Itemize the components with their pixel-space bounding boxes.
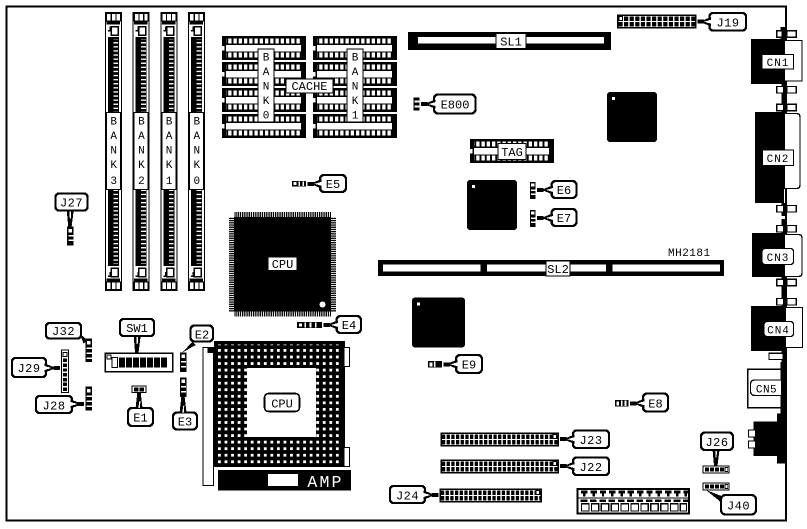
svg-text:SL1: SL1: [500, 36, 522, 50]
svg-text:K: K: [352, 96, 359, 108]
svg-text:J23: J23: [579, 434, 602, 448]
svg-text:J27: J27: [60, 197, 83, 211]
svg-text:B: B: [193, 117, 200, 129]
svg-text:J32: J32: [52, 325, 75, 339]
svg-text:TAG: TAG: [501, 146, 523, 160]
svg-text:E5: E5: [326, 178, 340, 192]
svg-text:B: B: [166, 117, 173, 129]
svg-text:1: 1: [352, 111, 359, 123]
svg-text:A: A: [263, 67, 270, 79]
svg-text:0: 0: [193, 176, 200, 188]
svg-text:AMP: AMP: [307, 473, 343, 492]
svg-text:CN2: CN2: [767, 154, 790, 166]
svg-text:SW1: SW1: [126, 322, 148, 336]
svg-text:K: K: [166, 160, 173, 172]
svg-text:E2: E2: [195, 328, 209, 342]
svg-text:K: K: [138, 160, 145, 172]
svg-text:N: N: [138, 146, 145, 158]
svg-text:E3: E3: [178, 416, 192, 430]
svg-text:CN5: CN5: [756, 385, 777, 397]
svg-text:N: N: [110, 146, 117, 158]
svg-text:N: N: [263, 82, 270, 94]
svg-text:MH2181: MH2181: [668, 248, 711, 260]
svg-text:J28: J28: [42, 400, 65, 414]
svg-text:A: A: [352, 67, 359, 79]
svg-text:E4: E4: [342, 319, 356, 333]
svg-text:A: A: [193, 131, 200, 143]
svg-text:A: A: [110, 131, 117, 143]
svg-text:E6: E6: [557, 184, 571, 198]
svg-text:J22: J22: [579, 461, 602, 475]
svg-text:B: B: [263, 53, 270, 65]
svg-text:J24: J24: [396, 489, 419, 503]
svg-text:B: B: [110, 117, 117, 129]
svg-text:A: A: [138, 131, 145, 143]
svg-text:K: K: [263, 96, 270, 108]
svg-text:3: 3: [110, 176, 117, 188]
svg-text:CPU: CPU: [272, 258, 294, 272]
svg-text:A: A: [166, 131, 173, 143]
svg-text:CN1: CN1: [767, 58, 790, 70]
svg-text:CN4: CN4: [767, 326, 790, 338]
svg-text:E800: E800: [441, 99, 470, 113]
svg-text:E9: E9: [462, 359, 476, 373]
svg-text:K: K: [193, 160, 200, 172]
svg-text:B: B: [352, 53, 359, 65]
svg-text:N: N: [166, 146, 173, 158]
svg-text:CACHE: CACHE: [291, 80, 327, 94]
svg-text:E8: E8: [648, 398, 662, 412]
svg-text:B: B: [138, 117, 145, 129]
svg-text:1: 1: [166, 176, 173, 188]
svg-text:CN3: CN3: [767, 253, 790, 265]
svg-text:0: 0: [263, 111, 270, 123]
svg-text:K: K: [110, 160, 117, 172]
svg-text:E1: E1: [133, 412, 147, 426]
svg-text:CPU: CPU: [271, 398, 293, 412]
svg-text:N: N: [193, 146, 200, 158]
svg-text:SL2: SL2: [547, 263, 569, 277]
svg-text:J26: J26: [705, 436, 728, 450]
svg-text:J29: J29: [17, 362, 40, 376]
svg-text:E7: E7: [557, 212, 571, 226]
svg-text:J40: J40: [727, 500, 750, 514]
svg-text:J19: J19: [716, 17, 739, 31]
svg-text:N: N: [352, 82, 359, 94]
svg-text:2: 2: [138, 176, 145, 188]
